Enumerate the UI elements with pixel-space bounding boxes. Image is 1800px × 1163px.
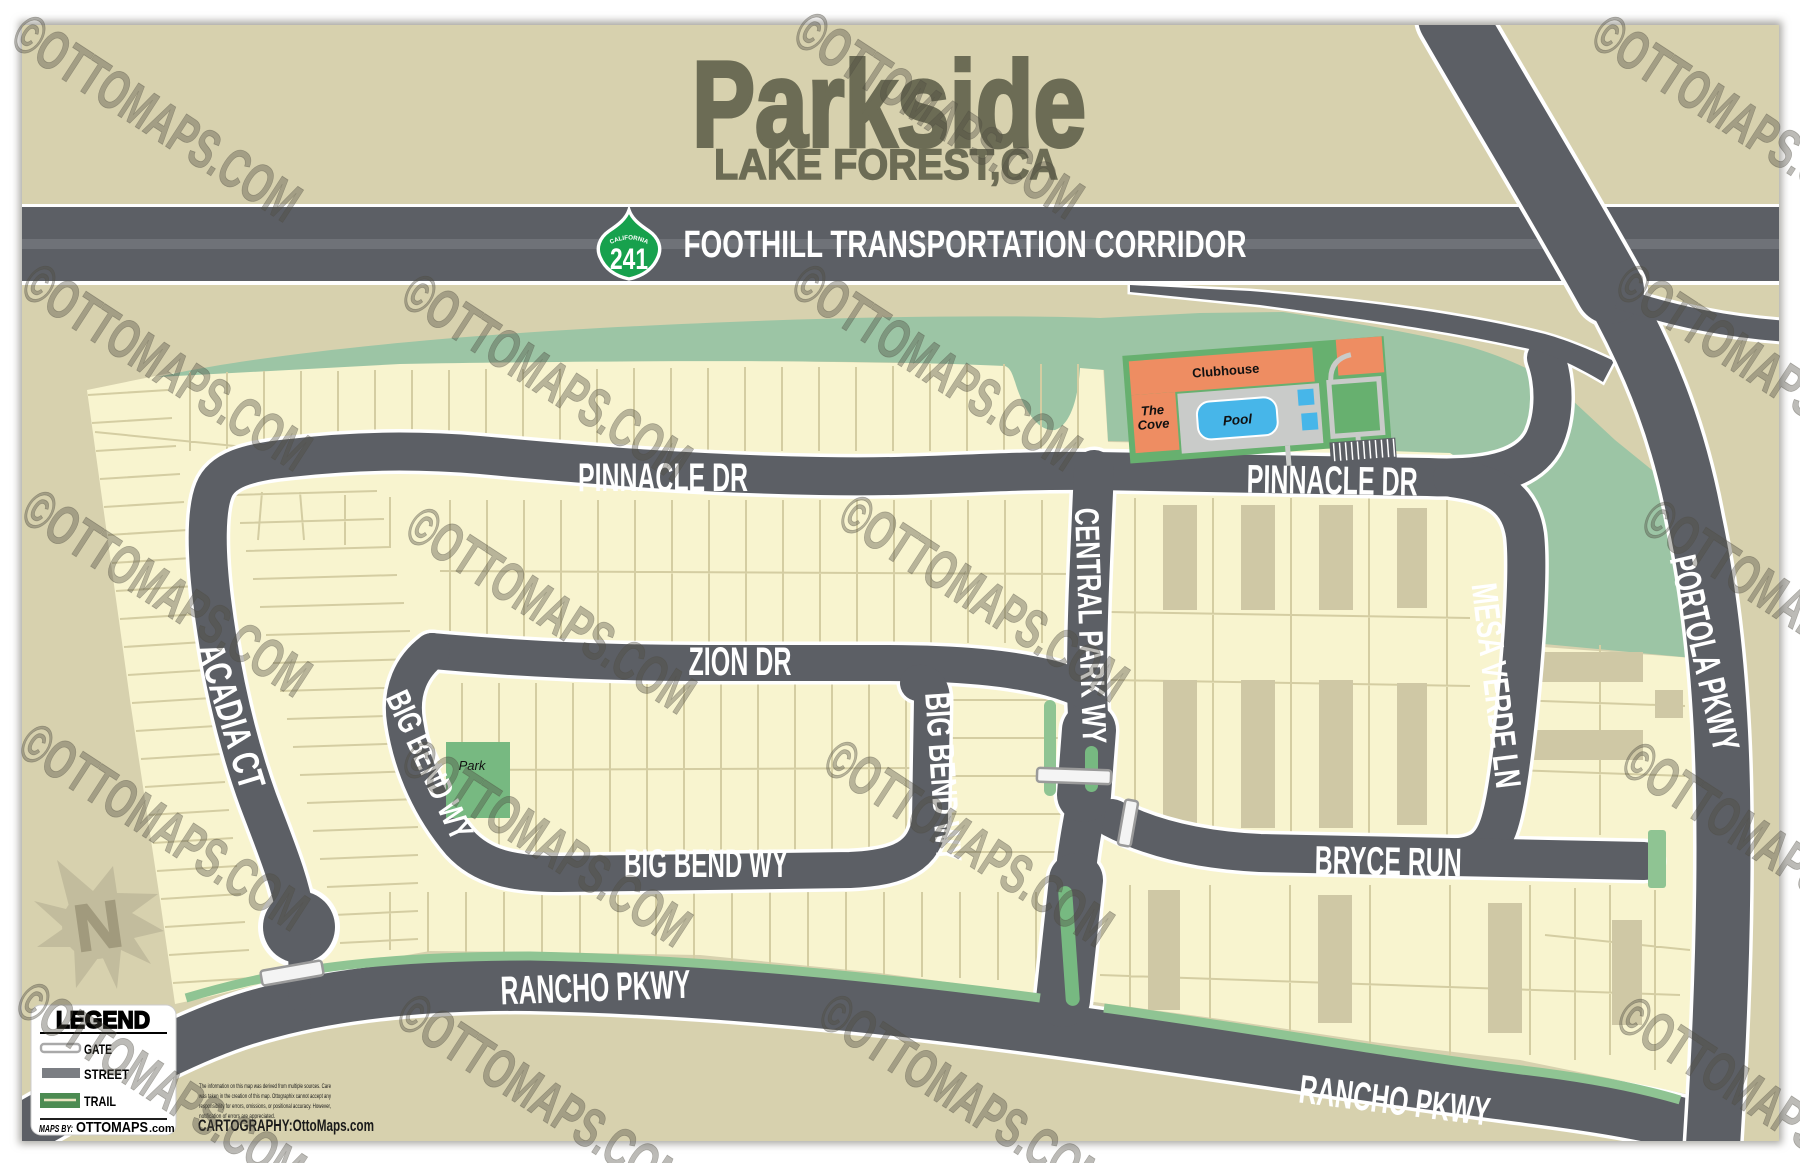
svg-text:TRAIL: TRAIL — [84, 1093, 116, 1109]
svg-text:241: 241 — [610, 243, 648, 276]
svg-text:Pool: Pool — [1222, 411, 1253, 428]
svg-text:PINNACLE DR: PINNACLE DR — [1246, 458, 1418, 505]
svg-text:BRYCE RUN: BRYCE RUN — [1314, 839, 1462, 886]
svg-text:Cove: Cove — [1137, 416, 1170, 433]
svg-text:N: N — [69, 886, 127, 966]
svg-text:ZION DR: ZION DR — [689, 640, 792, 684]
svg-text:RANCHO PKWY: RANCHO PKWY — [500, 963, 692, 1014]
svg-text:MAPS BY:: MAPS BY: — [39, 1124, 73, 1135]
svg-text:OTTOMAPS: OTTOMAPS — [76, 1119, 148, 1136]
svg-text:FOOTHILL TRANSPORTATION CORRID: FOOTHILL TRANSPORTATION CORRIDOR — [684, 224, 1247, 266]
